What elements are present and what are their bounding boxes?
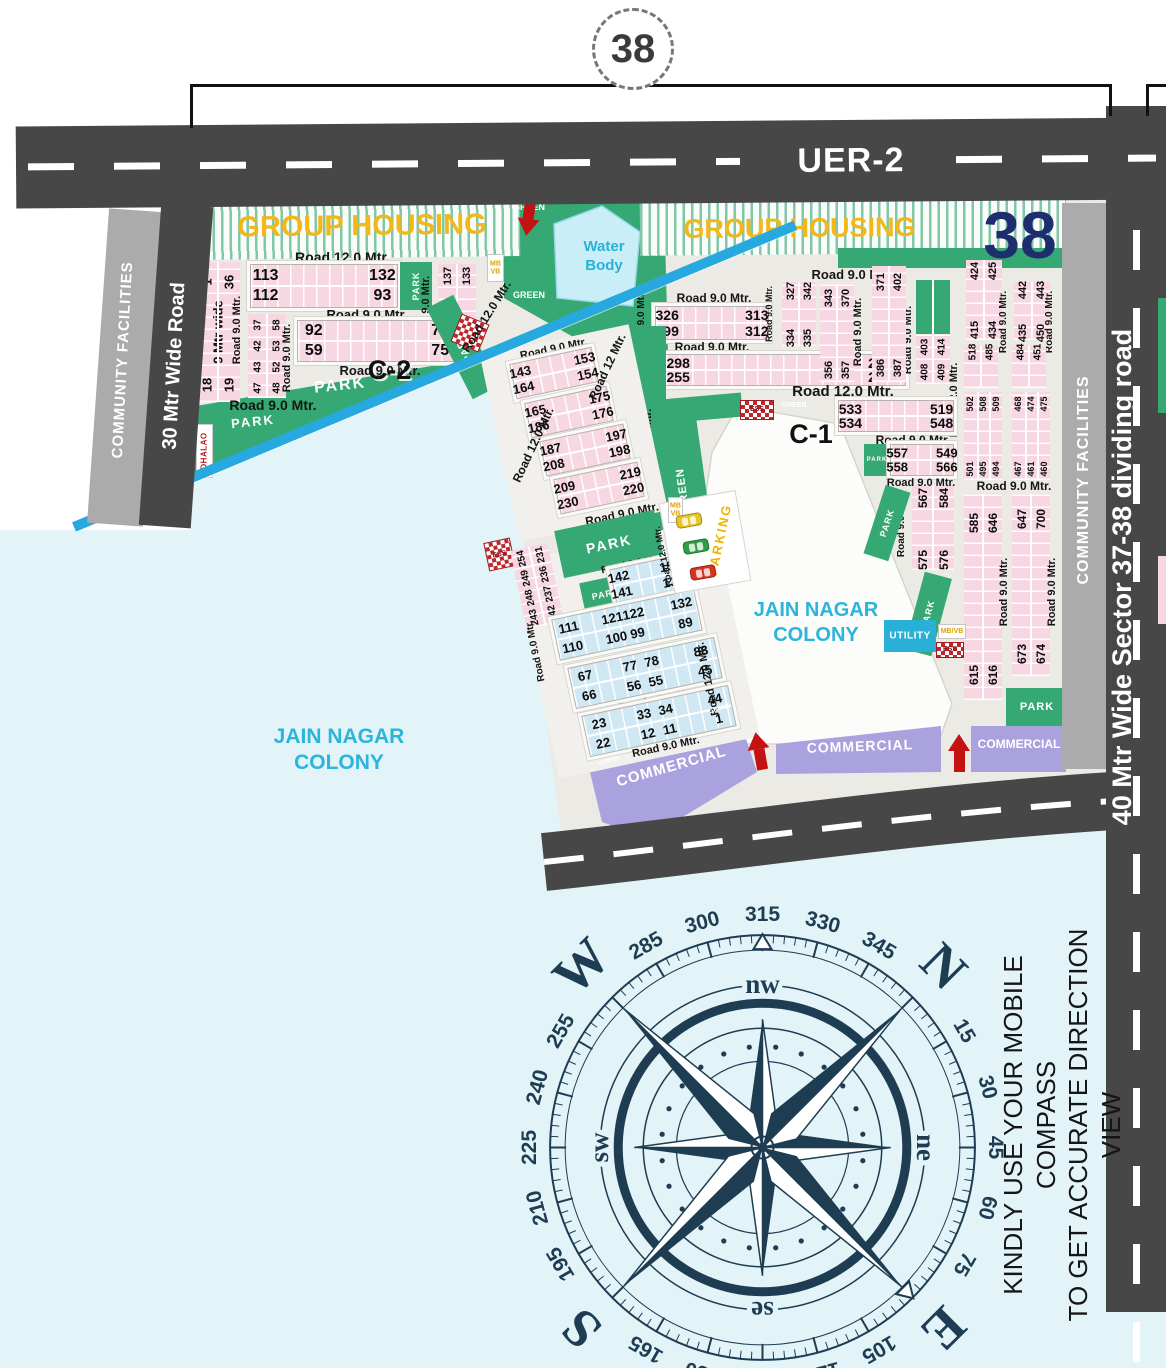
plot-number: 22 — [594, 734, 611, 752]
park-label: PARK — [217, 410, 288, 433]
plot-number: 219 — [618, 463, 642, 482]
plot-number: 132 — [669, 594, 693, 613]
plot-number: 137 — [442, 267, 454, 285]
sector-bracket-tick — [1146, 84, 1149, 116]
plot-number: 674 — [1034, 644, 1048, 664]
svg-text:330: 330 — [803, 907, 843, 938]
group-housing-label: GROUP HOUSING — [672, 211, 927, 249]
park: PARK — [1006, 688, 1068, 726]
green-area-label: PARK — [878, 508, 896, 539]
road-label: Road 9.0 Mtr. — [198, 398, 348, 412]
plot-number: 461 — [1026, 462, 1036, 477]
plot-number: 59 — [305, 342, 323, 360]
plot-number: 549 — [936, 445, 958, 460]
plot-number: 56 — [625, 676, 642, 694]
plot-number: 357 — [840, 361, 852, 379]
plot-col-502: 502508509501495494 — [964, 392, 1002, 480]
ess-box-text: ESS — [492, 549, 507, 559]
commercial-label: COMMERCIAL — [788, 735, 933, 760]
sector-number-text: 38 — [611, 27, 656, 72]
plot-number: 415 — [969, 321, 981, 339]
plot-number: 576 — [937, 550, 951, 570]
sector-bracket — [1146, 84, 1166, 87]
svg-text:150: 150 — [682, 1357, 722, 1368]
plot-number: 36 — [222, 274, 237, 288]
plot-number: 343 — [823, 289, 835, 307]
colony-label: JAIN NAGAR COLONY — [244, 724, 434, 788]
plot-number: 342 — [802, 282, 814, 300]
entry-arrow — [745, 730, 774, 773]
ess-box-text: ESS — [750, 406, 764, 414]
plot-col-567: 567584575576 — [912, 486, 954, 570]
plot-number: 23 — [590, 715, 607, 733]
site-plan-map: GROUP HOUSINGGROUP HOUSING3813618199 Mtr… — [0, 0, 1166, 1368]
svg-text:E: E — [910, 1295, 978, 1363]
entry-arrow — [948, 734, 970, 774]
adjacent-sector-sliver — [1158, 556, 1166, 624]
green-label: GREEN — [504, 290, 554, 302]
plot-number: 326 — [656, 307, 679, 323]
plot-number: 442 — [1017, 281, 1029, 299]
svg-text:S: S — [549, 1297, 613, 1361]
svg-text:195: 195 — [542, 1243, 580, 1285]
plot-number: 112 — [253, 287, 279, 305]
plot-col-468: 468474475467461460 — [1012, 392, 1050, 480]
svg-text:165: 165 — [625, 1330, 667, 1368]
plot-number: 142 — [606, 567, 630, 586]
plot-number: 141 — [610, 582, 634, 601]
plot-number: 502 — [965, 397, 975, 412]
plot-col-484: 484451 — [1012, 346, 1046, 388]
plot-number: 533 — [839, 401, 862, 417]
road-label: Road 9.0 Mtr. — [1045, 289, 1063, 355]
strip-label: 9 Mtr wide — [211, 300, 226, 364]
plot-col-371: 371402386387 — [872, 266, 906, 382]
plot-number: 451 — [1032, 344, 1043, 361]
plot-number: 558 — [886, 460, 908, 475]
sector-bracket-tick — [1109, 84, 1112, 116]
plot-number: 111 — [557, 618, 580, 637]
svg-text:N: N — [909, 931, 979, 1001]
plot-number: 78 — [643, 653, 660, 671]
plot-number: 11 — [661, 720, 678, 738]
road-label: Road 9.0 Mtr. — [282, 318, 300, 398]
arrow-head — [948, 734, 970, 751]
dhalao-box-text: DHALAO — [200, 432, 209, 469]
plot-number: 402 — [892, 273, 904, 291]
plot-number: 386 — [875, 359, 887, 377]
compass-note: KINDLY USE YOUR MOBILE COMPASS TO GET AC… — [997, 915, 1063, 1335]
plot-number: 298 — [667, 355, 690, 371]
ess-box: ESS — [936, 642, 964, 658]
plot-number: 435 — [1017, 324, 1029, 342]
road-center-dashes — [956, 155, 1156, 164]
plot-row-326: 326299313312 — [655, 306, 769, 340]
right-facilities-label: COMMUNITY FACILITIES — [1076, 315, 1098, 645]
plot-number: 93 — [373, 287, 391, 305]
plot-number: 584 — [937, 488, 951, 508]
plot-number: 567 — [916, 488, 930, 508]
svg-text:se: se — [751, 1296, 774, 1326]
road-label: Road 9.0 Mtr. — [658, 292, 770, 305]
plot-number: 67 — [576, 667, 593, 685]
plot-number: 220 — [621, 479, 645, 498]
green-label: GREEN — [772, 402, 816, 414]
arrow-shaft — [753, 748, 767, 771]
green-area — [916, 280, 950, 334]
dividing-road-name: 40 Mtr Wide Sector 37-38 dividing road — [1109, 297, 1139, 857]
plot-number: 122 — [621, 604, 645, 623]
plot-number: 356 — [823, 361, 835, 379]
plot-number: 370 — [840, 289, 852, 307]
plot-number: 33 — [635, 706, 652, 724]
plot-col-343: 343370356357 — [820, 284, 854, 382]
plot-number: 47 — [252, 382, 263, 393]
road-label: Road 9.0 Mtr. — [968, 480, 1060, 492]
svg-text:240: 240 — [522, 1067, 553, 1107]
green-area-label: PARK — [585, 531, 634, 556]
plot-number: 133 — [461, 267, 473, 285]
uer2-road: UER-2 — [16, 117, 1166, 208]
plot-number: 335 — [802, 329, 814, 347]
adjacent-sector-sliver — [1158, 298, 1166, 413]
plot-number: 425 — [987, 262, 999, 280]
svg-text:75: 75 — [948, 1248, 980, 1280]
plot-number: 585 — [967, 513, 981, 533]
plot-number: 19 — [222, 378, 237, 392]
plot-number: 42 — [252, 340, 263, 351]
plot-col-585: 585646615616 — [964, 494, 1002, 700]
plot-number: 110 — [561, 637, 585, 656]
svg-text:345: 345 — [858, 927, 900, 965]
green-strip — [661, 393, 743, 424]
plot-number: 92 — [305, 322, 323, 340]
utility-box: UTILITY — [884, 620, 936, 652]
plot-number: 197 — [604, 425, 628, 444]
ess-box: ESS — [740, 400, 774, 420]
plot-number: 566 — [936, 460, 958, 475]
arrow-head — [515, 217, 539, 237]
mb-vb-box: MB/VB — [938, 624, 966, 639]
plot-number: 143 — [508, 362, 532, 381]
plot-number: 475 — [1039, 397, 1049, 412]
plot-number: 55 — [647, 672, 664, 690]
plot-number: 575 — [916, 550, 930, 570]
plot-number: 508 — [978, 397, 988, 412]
plot-number: 121 — [600, 609, 624, 628]
plot-number: 34 — [657, 701, 674, 719]
colony-label: JAIN NAGAR COLONY — [732, 598, 900, 658]
plot-number: 249 — [519, 569, 533, 588]
plot-number: 647 — [1015, 509, 1029, 529]
plot-number: 327 — [785, 282, 797, 300]
plot-number: 509 — [991, 397, 1001, 412]
ess-box-text: ESS — [943, 646, 957, 654]
svg-text:120: 120 — [803, 1357, 843, 1368]
plot-number: 153 — [572, 349, 596, 368]
svg-text:285: 285 — [625, 927, 667, 965]
plot-col-518: 518485 — [964, 346, 998, 388]
plot-number: 43 — [252, 361, 263, 372]
plot-number: 501 — [965, 462, 975, 477]
plot-number: 113 — [253, 267, 279, 285]
plot-number: 230 — [556, 493, 580, 512]
plot-col-647: 647700673674 — [1012, 494, 1050, 676]
plot-col-403: 403414408409 — [916, 280, 950, 384]
sector-number: 38 — [972, 194, 1068, 270]
plot-number: 616 — [986, 665, 1000, 685]
plot-number: 248 — [523, 588, 537, 607]
plot-number: 700 — [1034, 509, 1048, 529]
plot-number: 518 — [967, 344, 978, 361]
plot-number: 474 — [1026, 397, 1036, 412]
utility-box-text: UTILITY — [889, 631, 930, 642]
plot-number: 403 — [919, 338, 930, 355]
svg-text:255: 255 — [542, 1010, 580, 1052]
plot-number: 236 — [537, 565, 551, 584]
svg-text:15: 15 — [948, 1015, 980, 1047]
svg-text:sw: sw — [584, 1132, 614, 1163]
plot-number: 484 — [1015, 344, 1026, 361]
arrow-shaft — [954, 751, 965, 772]
svg-text:nw: nw — [745, 969, 780, 999]
plot-number: 89 — [677, 614, 694, 632]
svg-text:105: 105 — [858, 1330, 900, 1368]
plot-number: 209 — [552, 477, 576, 496]
plot-number: 387 — [892, 359, 904, 377]
road-center-dashes — [28, 158, 740, 171]
svg-text:225: 225 — [518, 1130, 541, 1165]
plot-row-557: 557558549566 — [890, 444, 954, 476]
plot-row-113: 11311213293 — [250, 264, 398, 308]
svg-text:ne: ne — [911, 1134, 941, 1161]
road-label: Road 9.0 Mtr. — [660, 341, 764, 353]
sector-number-balloon: 38 — [592, 8, 674, 90]
plot-number: 100 — [604, 627, 628, 646]
road-label: Road 9.0 Mtr. — [765, 285, 783, 343]
water-body-label: Water Body — [566, 238, 642, 278]
plot-number: 37 — [252, 319, 263, 330]
green-area-label: PARK — [867, 457, 888, 463]
plot-number: 646 — [986, 513, 1000, 533]
plot-number: 77 — [621, 658, 638, 676]
compass-rose: 1530456075105120135150165195210225240255… — [500, 885, 1025, 1368]
plot-number: 164 — [511, 378, 535, 397]
plot-number: 18 — [200, 378, 215, 392]
road-label: Road 9.0 Mtr. — [232, 290, 250, 370]
plot-number: 132 — [369, 267, 396, 285]
plot-number: 237 — [541, 585, 555, 604]
plot-number: 334 — [785, 329, 797, 347]
plot-number: 99 — [629, 624, 646, 642]
commercial-label: COMMERCIAL — [972, 737, 1066, 755]
plot-col-327: 327342334335 — [782, 282, 816, 346]
plot-col-424: 424425415434 — [966, 260, 1002, 340]
plot-number: 519 — [930, 401, 953, 417]
arrow-head — [745, 730, 770, 751]
plot-number: 371 — [875, 273, 887, 291]
plot-number: 460 — [1039, 462, 1049, 477]
svg-text:W: W — [541, 926, 622, 1007]
plot-number: 231 — [533, 545, 547, 564]
green-area-label: PARK — [1020, 701, 1054, 713]
sector-bracket-tick — [190, 84, 193, 128]
svg-text:315: 315 — [745, 903, 780, 926]
plot-row-533: 533534519548 — [838, 400, 954, 432]
plot-number: 408 — [919, 363, 930, 380]
plot-number: 615 — [967, 665, 981, 685]
plot-number: 557 — [886, 445, 908, 460]
mb-vb-box-text: MB VB — [490, 260, 501, 275]
plot-number: 467 — [1013, 462, 1023, 477]
road-label: Road 9.0 Mtr. — [853, 295, 871, 369]
group-housing-label: GROUP HOUSING — [227, 206, 497, 245]
plot-number: 66 — [580, 686, 597, 704]
road-label: Road 12.0 Mtr. — [772, 384, 914, 399]
plot-number: 468 — [1013, 397, 1023, 412]
plot-number: 12 — [639, 724, 656, 742]
plot-number: 485 — [984, 344, 995, 361]
plot-number: 255 — [667, 369, 690, 385]
svg-text:300: 300 — [682, 907, 722, 938]
plot-number: 673 — [1015, 644, 1029, 664]
plot-number: 494 — [991, 462, 1001, 477]
c1-label: C-1 — [778, 418, 844, 454]
plot-number: 254 — [514, 549, 528, 568]
plot-number: 548 — [930, 415, 953, 431]
mb-vb-box-text: MB/VB — [941, 628, 964, 636]
svg-text:210: 210 — [522, 1188, 553, 1228]
uer2-road-name: UER-2 — [756, 141, 946, 181]
plot-number: 409 — [936, 363, 947, 380]
plot-number: 414 — [936, 338, 947, 355]
plot-number: 495 — [978, 462, 988, 477]
plot-number: 424 — [969, 262, 981, 280]
